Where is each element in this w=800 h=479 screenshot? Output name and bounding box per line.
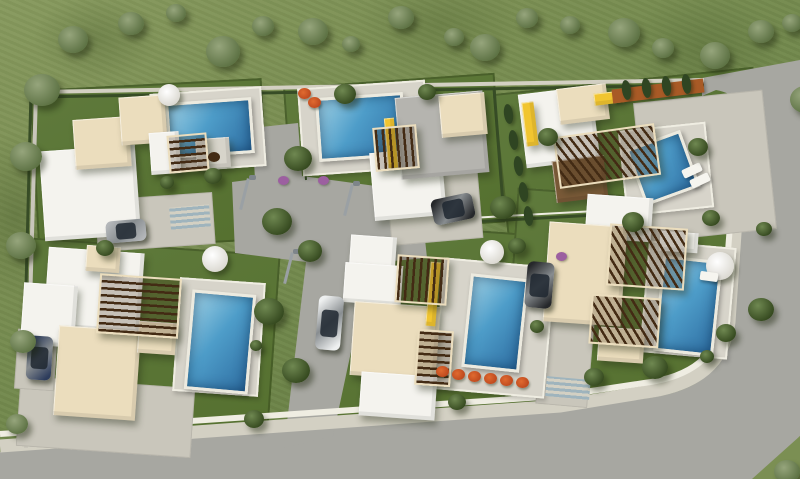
garden-tree [262,208,292,235]
street-lamp-head [353,181,360,186]
villa-1-top-left-pergola [166,132,209,173]
field-tree [748,20,774,43]
car-black-villa-2-windshield [441,198,465,220]
field-tree [608,18,640,47]
field-tree [516,8,538,28]
garden-tree [622,212,644,232]
steps-villa-1 [169,204,211,229]
flower-bush-red [436,366,449,377]
garden-tree [584,368,604,386]
field-tree [700,42,730,69]
field-tree [166,4,186,22]
field-tree [560,16,580,34]
car-silver-villa-1-windshield [115,222,136,239]
field-tree [652,38,674,58]
flower-bush-red [468,371,481,382]
field-tree [206,36,240,67]
flower-bush-purple [556,252,567,261]
flower-bush-red [298,88,311,99]
garden-tree [688,138,708,156]
car-white-street [315,295,345,351]
garden-tree [254,298,284,325]
field-tree [790,86,800,113]
field-tree [58,26,88,53]
garden-tree [334,84,356,104]
site-plan-render [0,0,800,479]
flower-bush-red [500,375,513,386]
pool-villa-4 [184,289,256,394]
flower-bush-red [452,369,465,380]
car-silver-villa-1 [105,218,147,243]
garden-tree [530,320,544,333]
street-lamp-pole [283,252,293,284]
field-tree [252,16,274,36]
flower-bush-red [516,377,529,388]
villa-5-bottom-middle-pergola [394,254,449,306]
garden-tree [716,324,736,342]
field-tree [782,14,800,32]
garden-tree [160,176,174,189]
villa-4-bottom-left-block-3 [53,325,141,421]
field-tree [388,6,414,29]
field-tree [118,12,144,35]
garden-tree [284,146,312,171]
car-black-villa-6 [524,261,555,309]
garden-tree [298,240,322,262]
street-lamp-head [249,175,256,180]
garden-tree [700,350,714,363]
garden-tree [748,298,774,321]
field-tree [470,34,500,61]
car-black-villa-6-windshield [529,273,550,298]
garden-tree [250,340,262,351]
field-tree [774,460,800,479]
field-tree [6,232,36,259]
field-tree [342,36,360,52]
villa-6-bottom-right-pergola [606,223,688,290]
field-tree [444,28,464,46]
garden-tree [756,222,772,236]
garden-tree [538,128,558,146]
gazebo-villa-5 [480,240,504,264]
villa-2-top-middle-block-2 [438,92,487,138]
villa-6-bottom-right-pergola [588,294,661,349]
patio-table [208,152,220,162]
villa-2-top-middle-pergola [372,124,420,172]
field-tree [6,414,28,434]
villa-4-bottom-left-pergola [96,273,182,339]
gazebo-villa-4 [202,246,228,272]
flower-bush-purple [318,176,329,185]
flower-bush-red [308,97,321,108]
parasol-villa-1 [158,84,180,106]
flower-bush-purple [278,176,289,185]
car-blue-villa-4-windshield [30,346,49,369]
pool-villa-5 [461,273,529,373]
garden-tree [244,410,264,428]
flower-bush-red [484,373,497,384]
field-tree [298,18,328,45]
field-tree [10,142,42,171]
car-white-street-windshield [320,309,340,337]
garden-tree [282,358,310,383]
villa-5-bottom-middle-pergola [414,329,454,387]
